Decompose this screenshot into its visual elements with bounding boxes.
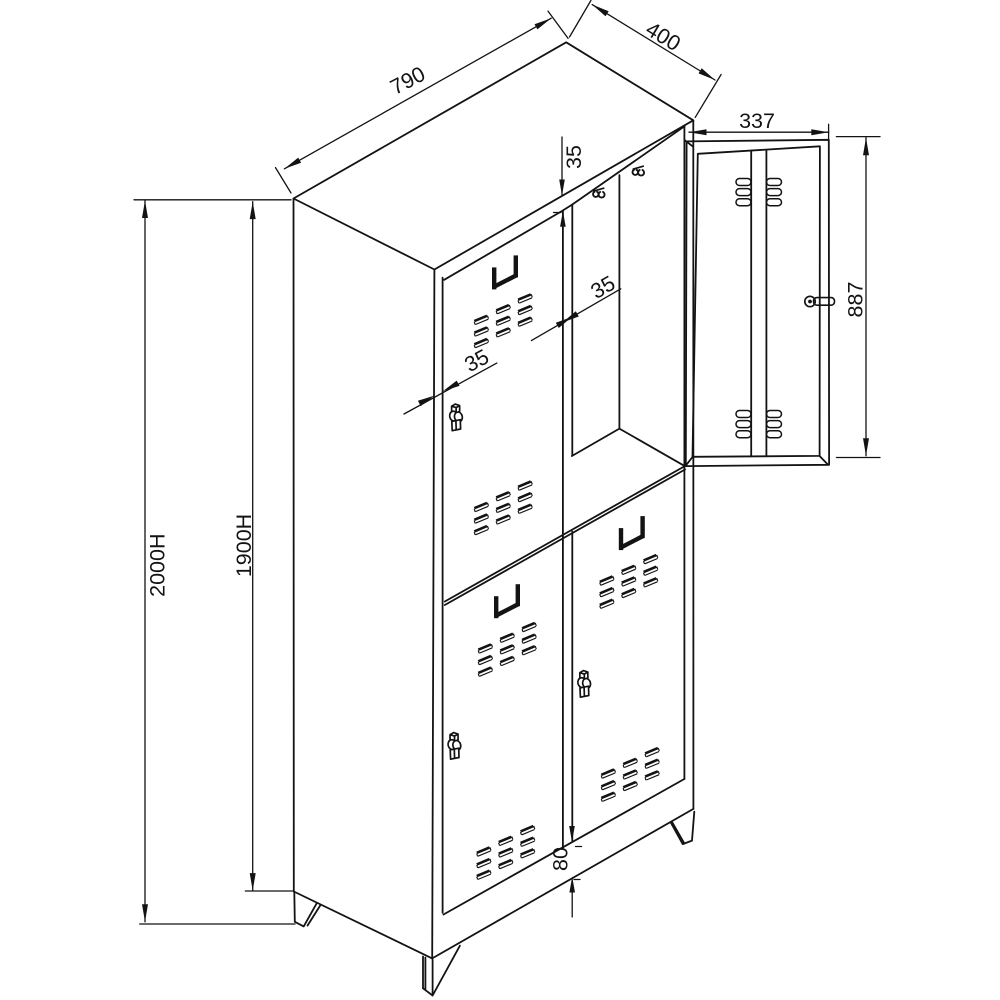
svg-text:80: 80 [549, 847, 573, 871]
svg-text:35: 35 [562, 145, 586, 169]
svg-text:337: 337 [739, 109, 775, 133]
svg-text:2000H: 2000H [146, 534, 170, 597]
svg-text:887: 887 [844, 282, 868, 318]
svg-text:1900H: 1900H [232, 514, 256, 577]
